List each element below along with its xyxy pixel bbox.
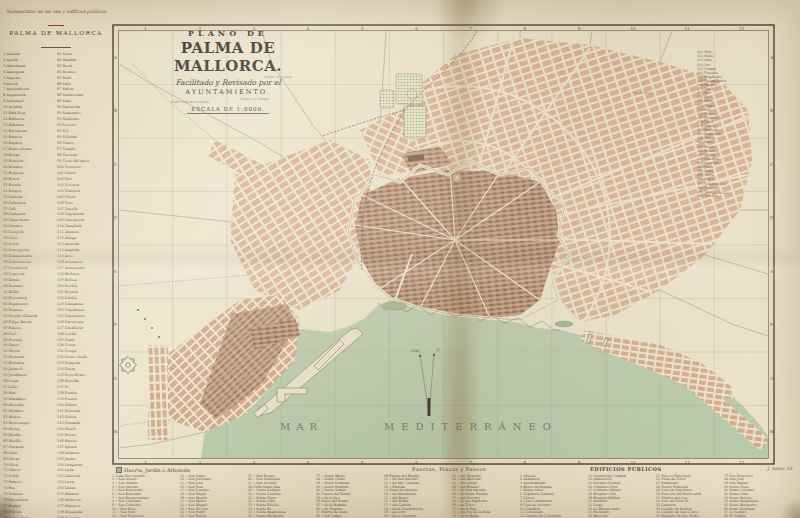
index-column: 25 Palacio Episcopal26 Plaza de Toros27 … — [656, 474, 724, 518]
index-column: 1 Calle San Agustín2 » San Alonso3 » San… — [112, 474, 180, 518]
grid-label: C — [114, 162, 117, 167]
grid-label: H — [770, 429, 774, 434]
grid-label: D — [114, 215, 117, 220]
compass-label-nm: N.M. — [411, 349, 419, 353]
index-column: 13 Cuartel del Carmen14 Diputación15 Esc… — [588, 474, 656, 518]
index-entry: 48 El Temple — [724, 514, 792, 518]
bullring — [452, 173, 462, 183]
index-column: 37 » Santa María38 » Santo Cristo39 » Sa… — [316, 474, 384, 518]
city-heading: PALMA DE MALLORCA — [0, 27, 112, 46]
index-entry: 36 Baluarte de San Pedro — [656, 514, 724, 518]
compass-needle — [428, 398, 431, 416]
grid-label: 12 — [739, 26, 745, 31]
grid-label: 6 — [415, 26, 418, 31]
grid-label: 7 — [469, 460, 472, 465]
bottom-street-index: Huerta, Jardín ó Arboleda Puertas, Plaza… — [112, 466, 798, 518]
divider — [48, 25, 64, 26]
compass-label-n: N. — [436, 348, 440, 352]
grid-label: 10 — [631, 460, 637, 465]
grid-label: 8 — [524, 26, 527, 31]
index-entry: 24 Mercado — [588, 514, 656, 518]
grid-label: 9 — [578, 26, 581, 31]
grid-label: D — [770, 215, 773, 220]
title-ayuntamiento: AYUNTAMIENTO. — [148, 88, 308, 96]
grid-label: B — [114, 108, 117, 113]
edificios-publicos-heading: EDIFICIOS PÚBLICOS — [590, 466, 662, 472]
grid-label: E — [770, 269, 773, 274]
index-entry: 48 » del Campo — [316, 514, 384, 518]
index-column: 13 » San Jaime14 » San Jerónimo15 » San … — [180, 474, 248, 518]
grid-label: 11 — [685, 26, 690, 31]
index-entry: 36 » Santa Margarita — [248, 514, 316, 518]
sea-label-mediterraneo: MEDITERRÁNEO — [384, 421, 558, 432]
grid-label: 7 — [469, 26, 472, 31]
index-column-2: 81 Quint82 Rambla83 Riera84 Rosario85 Ru… — [57, 51, 111, 518]
grid-label: F — [114, 322, 117, 327]
divider — [41, 47, 71, 48]
grid-label: H — [114, 429, 118, 434]
map-title-block: PLANO DE PALMA DE MALLORCA. Facilitado y… — [148, 28, 308, 115]
title-city: PALMA DE MALLORCA. — [148, 39, 308, 75]
map-frame: N.M. N. MAR MEDITERRÁNEO Predio Son Moix… — [112, 24, 775, 465]
place-label: Son Fortesa — [632, 91, 651, 95]
index-column: 49 Puerta del Muelle50 » de San Antonio5… — [384, 474, 452, 518]
grid-label: 1 — [144, 460, 147, 465]
index-column: 25 » San Roque26 » San Sebastián27 » San… — [248, 474, 316, 518]
grid-label: G — [770, 376, 773, 381]
grid-label: 4 — [307, 460, 310, 465]
grid-label: G — [114, 376, 117, 381]
legend-plazas: Puertas, Plazas y Paseos — [412, 466, 486, 472]
grid-label: A — [113, 55, 117, 60]
index-column: 1 Aduana2 Audiencia3 Ayuntamiento4 Banco… — [520, 474, 588, 518]
grid-label: 6 — [415, 460, 418, 465]
index-entry: 196 Terrassa — [697, 194, 771, 198]
grid-label: 5 — [361, 460, 364, 465]
grid-label: 3 — [253, 460, 256, 465]
grid-label: 11 — [685, 460, 690, 465]
left-street-index: Nomenclátor de las vías y edificios públ… — [0, 0, 112, 518]
bottom-index-columns: 1 Calle San Agustín2 » San Alonso3 » San… — [112, 474, 798, 518]
sea-label-mar: MAR — [280, 421, 323, 432]
grid-label: 8 — [524, 460, 527, 465]
title-plano-de: PLANO DE — [148, 28, 308, 38]
index-column: 37 San Francisco38 San José39 San Miguel… — [724, 474, 792, 518]
grid-label: E — [114, 269, 117, 274]
index-column-1: 1 Aduana2 Aguila3 Almudaina4 Amargura5 A… — [3, 51, 57, 518]
title-scale: ESCALA DE 1:8000. — [187, 106, 269, 114]
star-fort — [120, 357, 137, 374]
green-swatch-icon — [116, 467, 122, 473]
district-far-west — [148, 345, 168, 440]
index-entry: 60 » de la Cuartera — [384, 514, 452, 518]
legend-huerta: Huerta, Jardín ó Arboleda — [116, 467, 190, 473]
index-entry: 12 » San Francisco — [112, 514, 180, 518]
title-facilitado: Facilitado y Revisado por el — [148, 78, 308, 87]
grid-label: 10 — [631, 26, 637, 31]
right-street-index: 161 Niño162 Nube163 Oms164 Oro165 Palmer… — [697, 50, 771, 200]
index-entry: 12 Cuartel de Caballería — [520, 514, 588, 518]
map-sheet: Nomenclátor de las vías y edificios públ… — [0, 0, 800, 518]
engraver-signature: J. Amer. 18 — [767, 466, 792, 471]
grid-label: 1 — [144, 26, 147, 31]
grid-label: 12 — [739, 460, 745, 465]
grid-label: F — [770, 322, 773, 327]
grid-label: 5 — [361, 26, 364, 31]
index-column: 61 » del Hospital62 » del Mercado63 » de… — [452, 474, 520, 518]
index-entry: 24 » San Rafael — [180, 514, 248, 518]
nomenclator-heading: Nomenclátor de las vías y edificios públ… — [0, 5, 112, 24]
index-entry: 72 » de la Reina — [452, 514, 520, 518]
